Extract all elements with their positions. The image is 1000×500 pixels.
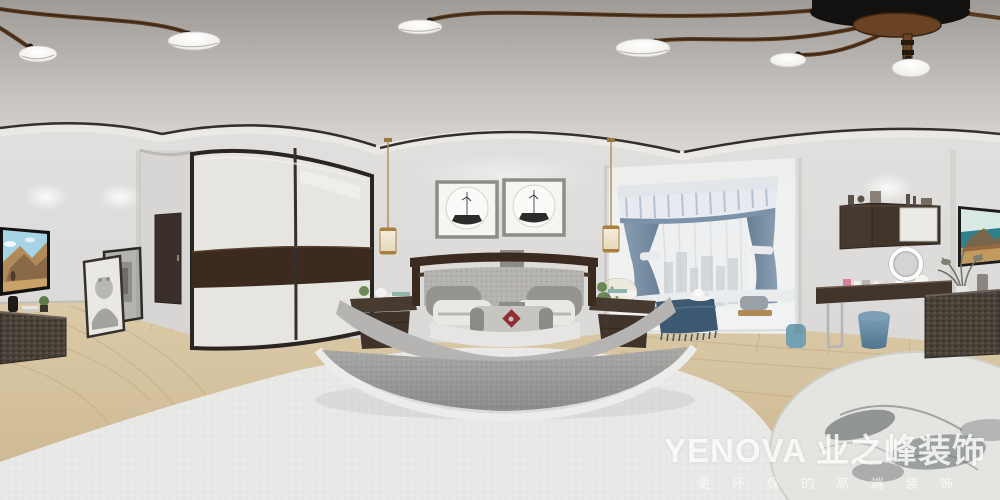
bay-window [597, 158, 798, 341]
artwork-left [437, 182, 497, 237]
vanity-stool [858, 311, 890, 349]
left-tv [0, 227, 50, 296]
bedroom-panorama [0, 0, 1000, 500]
gray-pillow [740, 296, 768, 310]
figurine-decor [8, 296, 18, 312]
hallway [140, 150, 192, 335]
plant-decor [39, 296, 49, 306]
artwork-right [504, 180, 564, 235]
panorama-viewport[interactable]: YENOVA 业之峰装饰 更 环 保 的 高 端 装 饰 [0, 0, 1000, 500]
